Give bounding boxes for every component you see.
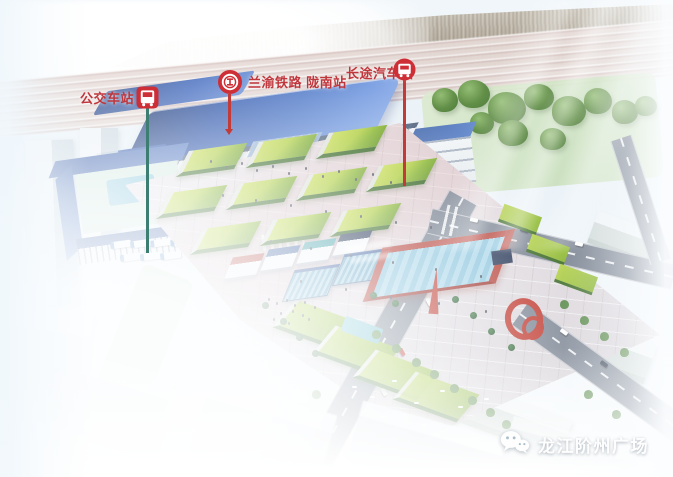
leader-line	[403, 80, 406, 186]
leader-line	[146, 108, 149, 253]
railway-station-label: 兰渝铁路 陇南站	[248, 72, 347, 91]
wechat-icon	[500, 429, 530, 460]
leader-arrow	[225, 129, 233, 135]
watermark-text: 龙江阶州广场	[538, 432, 649, 457]
bus-square-icon	[136, 86, 159, 114]
bus-circle-icon	[393, 58, 416, 86]
watermark: 龙江阶州广场	[500, 429, 649, 460]
bus-station-label: 公交车站	[80, 88, 134, 107]
railway-icon	[217, 69, 243, 100]
aerial-rendering: 公交车站 兰渝铁路 陇南站 长途汽车站	[0, 0, 673, 477]
